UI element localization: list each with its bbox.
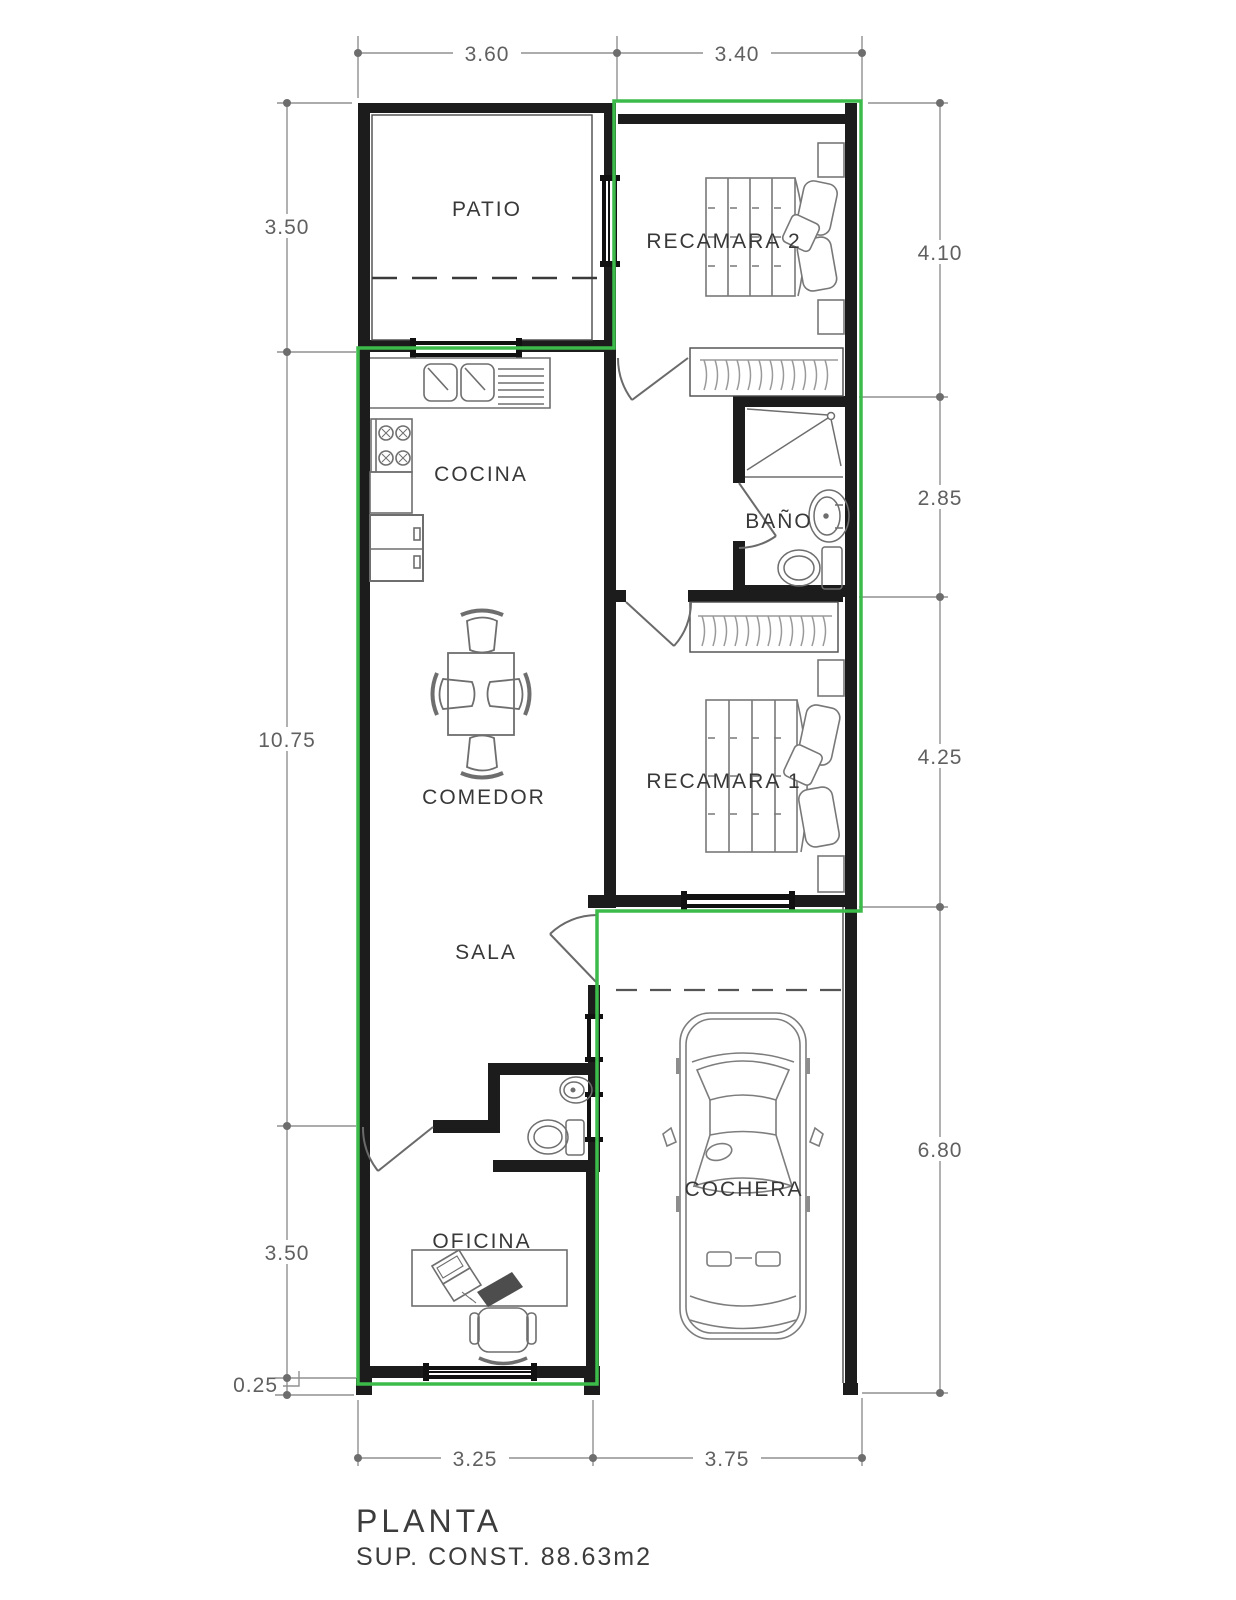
window-sala-cochera-1 [585, 1014, 603, 1062]
dim-left-3: 3.50 [265, 1242, 310, 1265]
nightstand-icon [818, 143, 844, 177]
stove-icon [371, 419, 412, 472]
dim-left-2: 10.75 [258, 729, 316, 752]
toilet-icon [778, 547, 842, 589]
floor-plan-drawing: 3.60 3.40 3.50 10.75 3.50 0.25 4.10 2.85… [0, 0, 1236, 1600]
patio-inner-face [372, 115, 592, 340]
door-oficina [363, 1127, 433, 1171]
floor-plan-page: 3.60 3.40 3.50 10.75 3.50 0.25 4.10 2.85… [0, 0, 1236, 1600]
dim-bottom-2: 3.75 [705, 1448, 750, 1471]
room-label-oficina: OFICINA [432, 1230, 531, 1253]
toilet-icon [528, 1120, 584, 1155]
drainboard-icon [498, 369, 544, 404]
dim-top-2: 3.40 [715, 43, 760, 66]
computer-icon [432, 1250, 523, 1307]
shower-icon [745, 409, 843, 477]
room-label-cochera: COCHERA [684, 1178, 803, 1201]
window-recamara1-cochera [681, 891, 795, 911]
chair-icon [461, 611, 503, 653]
chair-icon [433, 673, 475, 715]
office-furniture [412, 1250, 567, 1364]
bathroom-sink-icon [809, 490, 849, 542]
car-icon [663, 1013, 823, 1339]
recamara2-closet [690, 348, 843, 396]
nightstand-icon [818, 300, 844, 334]
dim-bottom-1: 3.25 [453, 1448, 498, 1471]
office-chair-icon [470, 1308, 536, 1364]
half-bath-fixtures [528, 1077, 592, 1155]
door-recamara1 [626, 602, 691, 646]
cabinet-icon [370, 472, 412, 513]
dim-right-4: 6.80 [918, 1139, 963, 1162]
plan-title: PLANTA [356, 1503, 502, 1539]
keyboard-icon [477, 1272, 523, 1307]
dim-right-1: 4.10 [918, 242, 963, 265]
recamara1-closet [690, 602, 838, 652]
room-label-bano: BAÑO [745, 509, 813, 533]
room-label-recamara1: RECAMARA 1 [646, 770, 801, 793]
nightstand-icon [818, 856, 844, 892]
room-label-recamara2: RECAMARA 2 [646, 230, 801, 253]
window-oficina-front [423, 1363, 537, 1381]
bathroom-fixtures [745, 409, 849, 589]
title-block: PLANTA SUP. CONST. 88.63m2 [356, 1503, 652, 1571]
refrigerator-icon [370, 515, 423, 581]
nightstand-icon [818, 660, 844, 696]
dim-right-3: 4.25 [918, 746, 963, 769]
hangers-recamara2 [704, 360, 828, 390]
room-label-comedor: COMEDOR [422, 786, 546, 809]
door-recamara2 [618, 358, 688, 400]
room-label-sala: SALA [455, 941, 517, 964]
dim-right-2: 2.85 [918, 487, 963, 510]
dim-left-4: 0.25 [233, 1374, 278, 1397]
chair-icon [461, 736, 503, 778]
chair-icon [488, 673, 530, 715]
dining-table-icon [433, 611, 530, 778]
dim-top-1: 3.60 [465, 43, 510, 66]
plan-subtitle: SUP. CONST. 88.63m2 [356, 1543, 652, 1571]
hangers-recamara1 [702, 616, 826, 646]
door-sala-cochera [550, 915, 597, 983]
powder-sink-icon [560, 1077, 592, 1103]
room-label-cocina: COCINA [434, 463, 528, 486]
dim-left-1: 3.50 [265, 216, 310, 239]
window-recamara2-patio [600, 175, 620, 267]
room-label-patio: PATIO [452, 198, 522, 221]
